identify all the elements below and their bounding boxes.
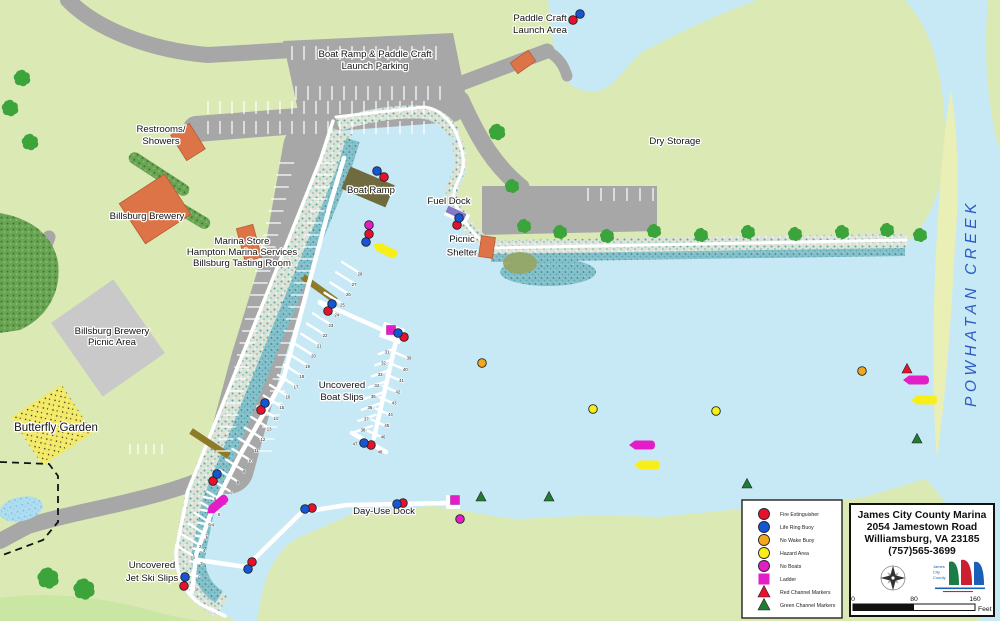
slip-number: 32: [381, 361, 386, 366]
marker-life: [244, 565, 253, 574]
slip-number: 48: [378, 450, 383, 455]
marker-noboat: [456, 515, 465, 524]
info-box-line: 2054 Jamestown Road: [867, 522, 977, 533]
label-restrooms-showers: Restrooms/Showers: [136, 124, 185, 147]
slip-number: 45: [384, 423, 389, 428]
marker-life: [213, 470, 222, 479]
slip-number: 25: [340, 302, 345, 307]
scale-tick-label: 160: [969, 596, 981, 603]
svg-text:Restrooms/: Restrooms/: [136, 124, 185, 135]
marker-life: [373, 167, 382, 176]
slip-number: 47: [353, 442, 358, 447]
label-boat-ramp: Boat Ramp: [347, 185, 395, 196]
svg-text:Jet Ski Slips: Jet Ski Slips: [126, 573, 178, 584]
legend-item-label: Fire Extinguisher: [780, 512, 819, 518]
svg-text:Marina Store: Marina Store: [215, 236, 270, 247]
scale-unit-label: Feet: [978, 606, 992, 613]
marker-life: [301, 505, 310, 514]
marker-life: [360, 439, 369, 448]
slip-number: 28: [358, 272, 363, 277]
slip-number: 41: [399, 378, 404, 383]
marker-hazard: [712, 407, 721, 416]
label-butterfly-garden: Butterfly Garden: [14, 422, 98, 434]
slip-number: 39: [407, 356, 412, 361]
info-box-line: (757)565-3699: [888, 546, 956, 557]
legend-item-label: Ladder: [780, 577, 796, 583]
slip-number: 19: [305, 364, 310, 369]
svg-text:Boat Slips: Boat Slips: [320, 392, 363, 403]
label-dry-storage: Dry Storage: [649, 136, 700, 147]
shore-drive-lot: [482, 186, 657, 235]
svg-text:Shelter: Shelter: [447, 248, 478, 259]
slip-number: 40: [403, 367, 408, 372]
slip-number: 16: [286, 395, 291, 400]
slip-number: 17: [294, 385, 299, 390]
marker-nowake: [858, 367, 867, 376]
slip-number: 42: [395, 389, 400, 394]
marker-life: [394, 329, 403, 338]
legend-item-label: Green Channel Markers: [780, 603, 836, 609]
marker-hazard: [589, 405, 598, 414]
slip-number: 22: [323, 333, 328, 338]
svg-text:Launch Area: Launch Area: [513, 25, 568, 36]
slip-number: 24: [334, 313, 339, 318]
marker-fire: [365, 230, 374, 239]
county-logo-text: James: [933, 564, 945, 569]
slip-number: 27: [352, 282, 357, 287]
marker-life: [576, 10, 585, 19]
info-box-line: Williamsburg, VA 23185: [865, 534, 980, 545]
label-uncovered-boat-slips: UncoveredBoat Slips: [319, 380, 365, 403]
slip-number: 34: [374, 383, 379, 388]
legend-item-label: Red Channel Markers: [780, 590, 831, 596]
slip-number: 10: [248, 459, 253, 464]
marker-fire: [380, 173, 389, 182]
legend-item-label: No Boats: [780, 564, 802, 570]
svg-text:Hampton Marina Services: Hampton Marina Services: [187, 247, 298, 258]
marker-life: [362, 238, 371, 247]
slip-number: 44: [388, 412, 393, 417]
marker-fire: [569, 16, 578, 25]
slip-number: 36: [367, 405, 372, 410]
label-billsburg-brewery: Billsburg Brewery: [110, 211, 185, 222]
marker-life: [328, 300, 337, 309]
slip-number: 11: [254, 448, 259, 453]
svg-text:Dry Storage: Dry Storage: [649, 136, 700, 147]
label-fuel-dock: Fuel Dock: [427, 196, 470, 207]
svg-text:Uncovered: Uncovered: [319, 380, 365, 391]
slip-number: 37: [364, 416, 369, 421]
legend: Fire ExtinguisherLife Ring BuoyNo Wake B…: [742, 500, 842, 618]
slip-number: 18: [299, 374, 304, 379]
creek-label-layer: POWHATAN CREEK: [963, 199, 980, 407]
slip-number: 38: [361, 428, 366, 433]
slip-number: 46: [381, 435, 386, 440]
svg-text:Launch Parking: Launch Parking: [342, 61, 409, 72]
county-logo-text: City: [933, 570, 940, 575]
svg-text:Picnic: Picnic: [449, 234, 475, 245]
legend-item-label: Life Ring Buoy: [780, 525, 814, 531]
marina-map: 1234567891011121314151617181920212223242…: [0, 0, 1000, 621]
scale-tick-label: 80: [910, 596, 918, 603]
info-box-line: James City County Marina: [858, 510, 987, 521]
info-box: James City County Marina2054 Jamestown R…: [850, 504, 994, 616]
svg-text:Day-Use Dock: Day-Use Dock: [353, 506, 415, 517]
slip-number: 43: [392, 401, 397, 406]
slip-number: 20: [311, 354, 316, 359]
legend-item-label: No Wake Buoy: [780, 538, 815, 544]
county-logo-text: County: [933, 575, 946, 580]
svg-text:Fuel Dock: Fuel Dock: [427, 196, 470, 207]
svg-text:Picnic Area: Picnic Area: [88, 337, 137, 348]
slip-number: 33: [378, 372, 383, 377]
marker-life: [455, 214, 464, 223]
svg-text:Butterfly Garden: Butterfly Garden: [14, 422, 98, 434]
slip-number: 14: [273, 416, 278, 421]
slip-number: 15: [279, 405, 284, 410]
marker-ladder: [451, 496, 460, 505]
label-day-use-dock: Day-Use Dock: [353, 506, 415, 517]
marker-life: [393, 500, 402, 509]
creek-label: POWHATAN CREEK: [963, 199, 980, 407]
svg-text:Uncovered: Uncovered: [129, 560, 175, 571]
marker-fire: [180, 582, 189, 591]
svg-text:Showers: Showers: [142, 136, 180, 147]
label-paddle-craft-launch-area: Paddle CraftLaunch Area: [513, 13, 568, 36]
slip-number: 21: [317, 343, 322, 348]
shore-mound: [503, 252, 537, 274]
slip-number: 35: [371, 394, 376, 399]
slip-number: 13: [267, 427, 272, 432]
marker-life: [261, 399, 270, 408]
slip-number: 26: [346, 292, 351, 297]
svg-text:Boat Ramp & Paddle Craft: Boat Ramp & Paddle Craft: [318, 49, 431, 60]
svg-text:Paddle Craft: Paddle Craft: [513, 13, 567, 24]
svg-text:Boat Ramp: Boat Ramp: [347, 185, 395, 196]
marina-map-canvas: 1234567891011121314151617181920212223242…: [0, 0, 1000, 621]
slip-number: 23: [329, 323, 334, 328]
scale-tick-label: 0: [851, 596, 855, 603]
svg-text:Billsburg Brewery: Billsburg Brewery: [75, 326, 150, 337]
svg-text:Billsburg Tasting Room: Billsburg Tasting Room: [193, 258, 291, 269]
slip-number: 31: [385, 350, 390, 355]
compass-rose-icon: [881, 566, 906, 591]
building-picnic-shelter: [479, 236, 496, 259]
svg-text:Billsburg Brewery: Billsburg Brewery: [110, 211, 185, 222]
marker-noboat: [365, 221, 374, 230]
slip-number: 12: [261, 437, 266, 442]
marker-life: [181, 573, 190, 582]
marker-nowake: [478, 359, 487, 368]
legend-item-label: Hazard Area: [780, 551, 809, 557]
